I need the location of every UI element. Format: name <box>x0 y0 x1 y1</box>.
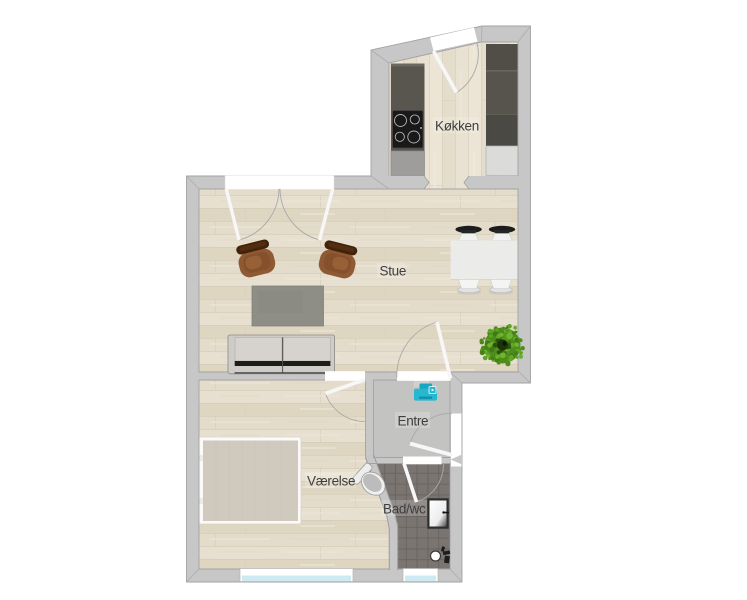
svg-text:Køkken: Køkken <box>435 118 479 133</box>
svg-text:Bad/wc: Bad/wc <box>383 501 426 516</box>
svg-text:Stue: Stue <box>380 264 407 279</box>
svg-text:Værelse: Værelse <box>307 473 355 488</box>
svg-text:Entre: Entre <box>398 413 429 428</box>
